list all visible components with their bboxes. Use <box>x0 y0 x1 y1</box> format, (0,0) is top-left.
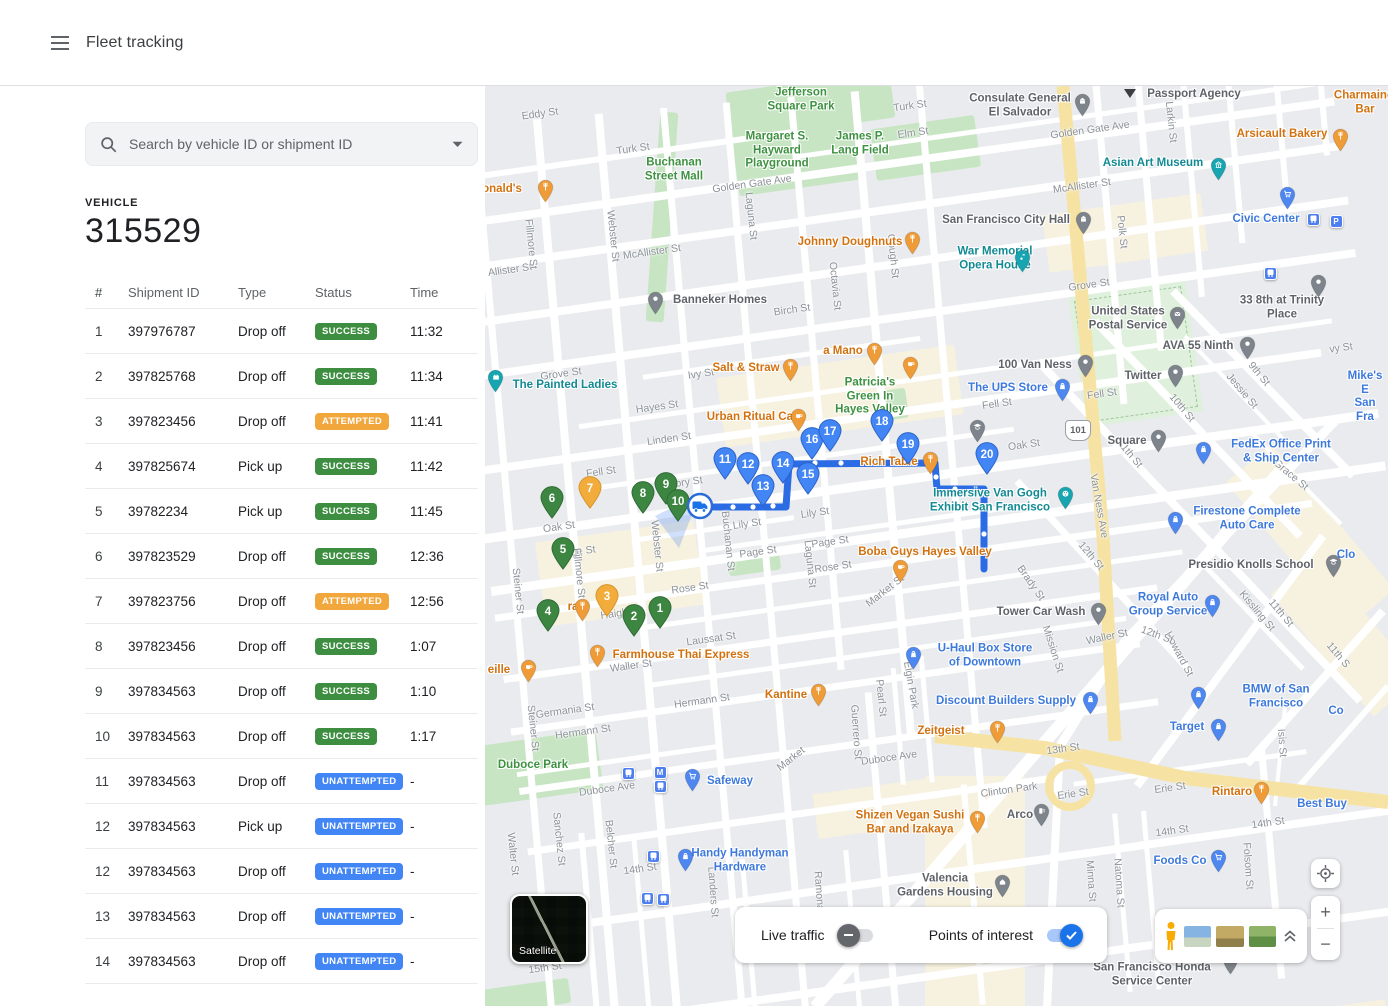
table-row[interactable]: 11397834563Drop off UNATTEMPTED - <box>85 759 478 804</box>
vehicle-layer <box>485 86 1388 1006</box>
search-box[interactable] <box>85 122 478 166</box>
table-row[interactable]: 4397825674Pick up SUCCESS 11:42 <box>85 444 478 489</box>
time-cell: 1:10 <box>410 684 478 699</box>
table-row[interactable]: 2397825768Drop off SUCCESS 11:34 <box>85 354 478 399</box>
time-cell: - <box>410 909 478 924</box>
app-header: Fleet tracking <box>0 0 1388 86</box>
table-header: #Shipment IDTypeStatusTime <box>85 277 478 309</box>
status-badge: SUCCESS <box>315 728 377 746</box>
map-canvas[interactable]: MP Eddy StTurk StTurk StElm StGolden Gat… <box>485 86 1388 1006</box>
locate-icon <box>1317 865 1334 882</box>
points-of-interest-label: Points of interest <box>929 927 1033 943</box>
time-cell: - <box>410 774 478 789</box>
my-location-button[interactable] <box>1311 859 1340 888</box>
imagery-thumbnail[interactable] <box>1249 926 1276 947</box>
live-traffic-toggle[interactable] <box>839 929 873 942</box>
table-row[interactable]: 9397834563Drop off SUCCESS 1:10 <box>85 669 478 714</box>
time-cell: 11:45 <box>410 504 478 519</box>
zoom-in-button[interactable]: + <box>1311 896 1340 928</box>
zoom-controls: + − <box>1311 896 1340 960</box>
time-cell: - <box>410 819 478 834</box>
time-cell: 1:07 <box>410 639 478 654</box>
status-badge: UNATTEMPTED <box>315 908 403 926</box>
status-badge: SUCCESS <box>315 638 377 656</box>
time-cell: 12:36 <box>410 549 478 564</box>
live-traffic-label: Live traffic <box>761 927 825 943</box>
search-input[interactable] <box>129 136 440 152</box>
points-of-interest-toggle[interactable] <box>1047 929 1081 942</box>
time-cell: - <box>410 954 478 969</box>
time-cell: - <box>410 864 478 879</box>
table-row[interactable]: 14397834563Drop off UNATTEMPTED - <box>85 939 478 984</box>
table-row[interactable]: 539782234Pick up SUCCESS 11:45 <box>85 489 478 534</box>
search-icon <box>100 136 117 153</box>
satellite-toggle[interactable]: Satellite <box>510 894 588 964</box>
vehicle-id: 315529 <box>85 212 478 251</box>
time-cell: 1:17 <box>410 729 478 744</box>
table-row[interactable]: 1397976787Drop off SUCCESS 11:32 <box>85 309 478 354</box>
status-badge: UNATTEMPTED <box>315 818 403 836</box>
imagery-thumbnail[interactable] <box>1184 926 1211 947</box>
table-row[interactable]: 8397823456Drop off SUCCESS 1:07 <box>85 624 478 669</box>
status-badge: SUCCESS <box>315 683 377 701</box>
shipments-table: #Shipment IDTypeStatusTime 1397976787Dro… <box>85 277 478 984</box>
table-row[interactable]: 13397834563Drop off UNATTEMPTED - <box>85 894 478 939</box>
status-badge: ATTEMPTED <box>315 413 389 431</box>
table-row[interactable]: 7397823756Drop off ATTEMPTED 12:56 <box>85 579 478 624</box>
time-cell: 11:32 <box>410 324 478 339</box>
zoom-out-button[interactable]: − <box>1311 929 1340 961</box>
menu-icon[interactable] <box>48 31 72 55</box>
table-row[interactable]: 3397823456Drop off ATTEMPTED 11:41 <box>85 399 478 444</box>
status-badge: SUCCESS <box>315 503 377 521</box>
street-view-panel <box>1155 909 1307 963</box>
status-badge: SUCCESS <box>315 548 377 566</box>
chevron-down-icon[interactable] <box>452 141 463 148</box>
status-badge: UNATTEMPTED <box>315 953 403 971</box>
time-cell: 11:34 <box>410 369 478 384</box>
vehicle-marker[interactable] <box>685 492 715 527</box>
status-badge: UNATTEMPTED <box>315 863 403 881</box>
time-cell: 11:41 <box>410 414 478 429</box>
vehicle-label: VEHICLE <box>85 197 478 209</box>
page-title: Fleet tracking <box>86 34 183 52</box>
time-cell: 11:42 <box>410 459 478 474</box>
minus-icon <box>844 934 853 936</box>
satellite-label: Satellite <box>519 945 556 957</box>
time-cell: 12:56 <box>410 594 478 609</box>
status-badge: SUCCESS <box>315 458 377 476</box>
status-badge: SUCCESS <box>315 368 377 386</box>
map-toggle-panel: Live traffic Points of interest <box>735 907 1107 963</box>
check-icon <box>1066 931 1077 940</box>
status-badge: SUCCESS <box>315 323 377 341</box>
table-row[interactable]: 12397834563Drop off UNATTEMPTED - <box>85 849 478 894</box>
status-badge: UNATTEMPTED <box>315 773 403 791</box>
app-window: Fleet tracking VEHICLE 315529 #Shipment … <box>0 0 1388 1006</box>
collapse-chevron-icon[interactable] <box>1281 926 1299 947</box>
imagery-thumbnail[interactable] <box>1216 926 1243 947</box>
table-row[interactable]: 6397823529Drop off SUCCESS 12:36 <box>85 534 478 579</box>
sidebar: VEHICLE 315529 #Shipment IDTypeStatusTim… <box>0 86 485 1006</box>
table-row[interactable]: 10397834563Drop off SUCCESS 1:17 <box>85 714 478 759</box>
status-badge: ATTEMPTED <box>315 593 389 611</box>
table-row[interactable]: 12397834563Pick up UNATTEMPTED - <box>85 804 478 849</box>
pegman-icon[interactable] <box>1163 921 1179 951</box>
